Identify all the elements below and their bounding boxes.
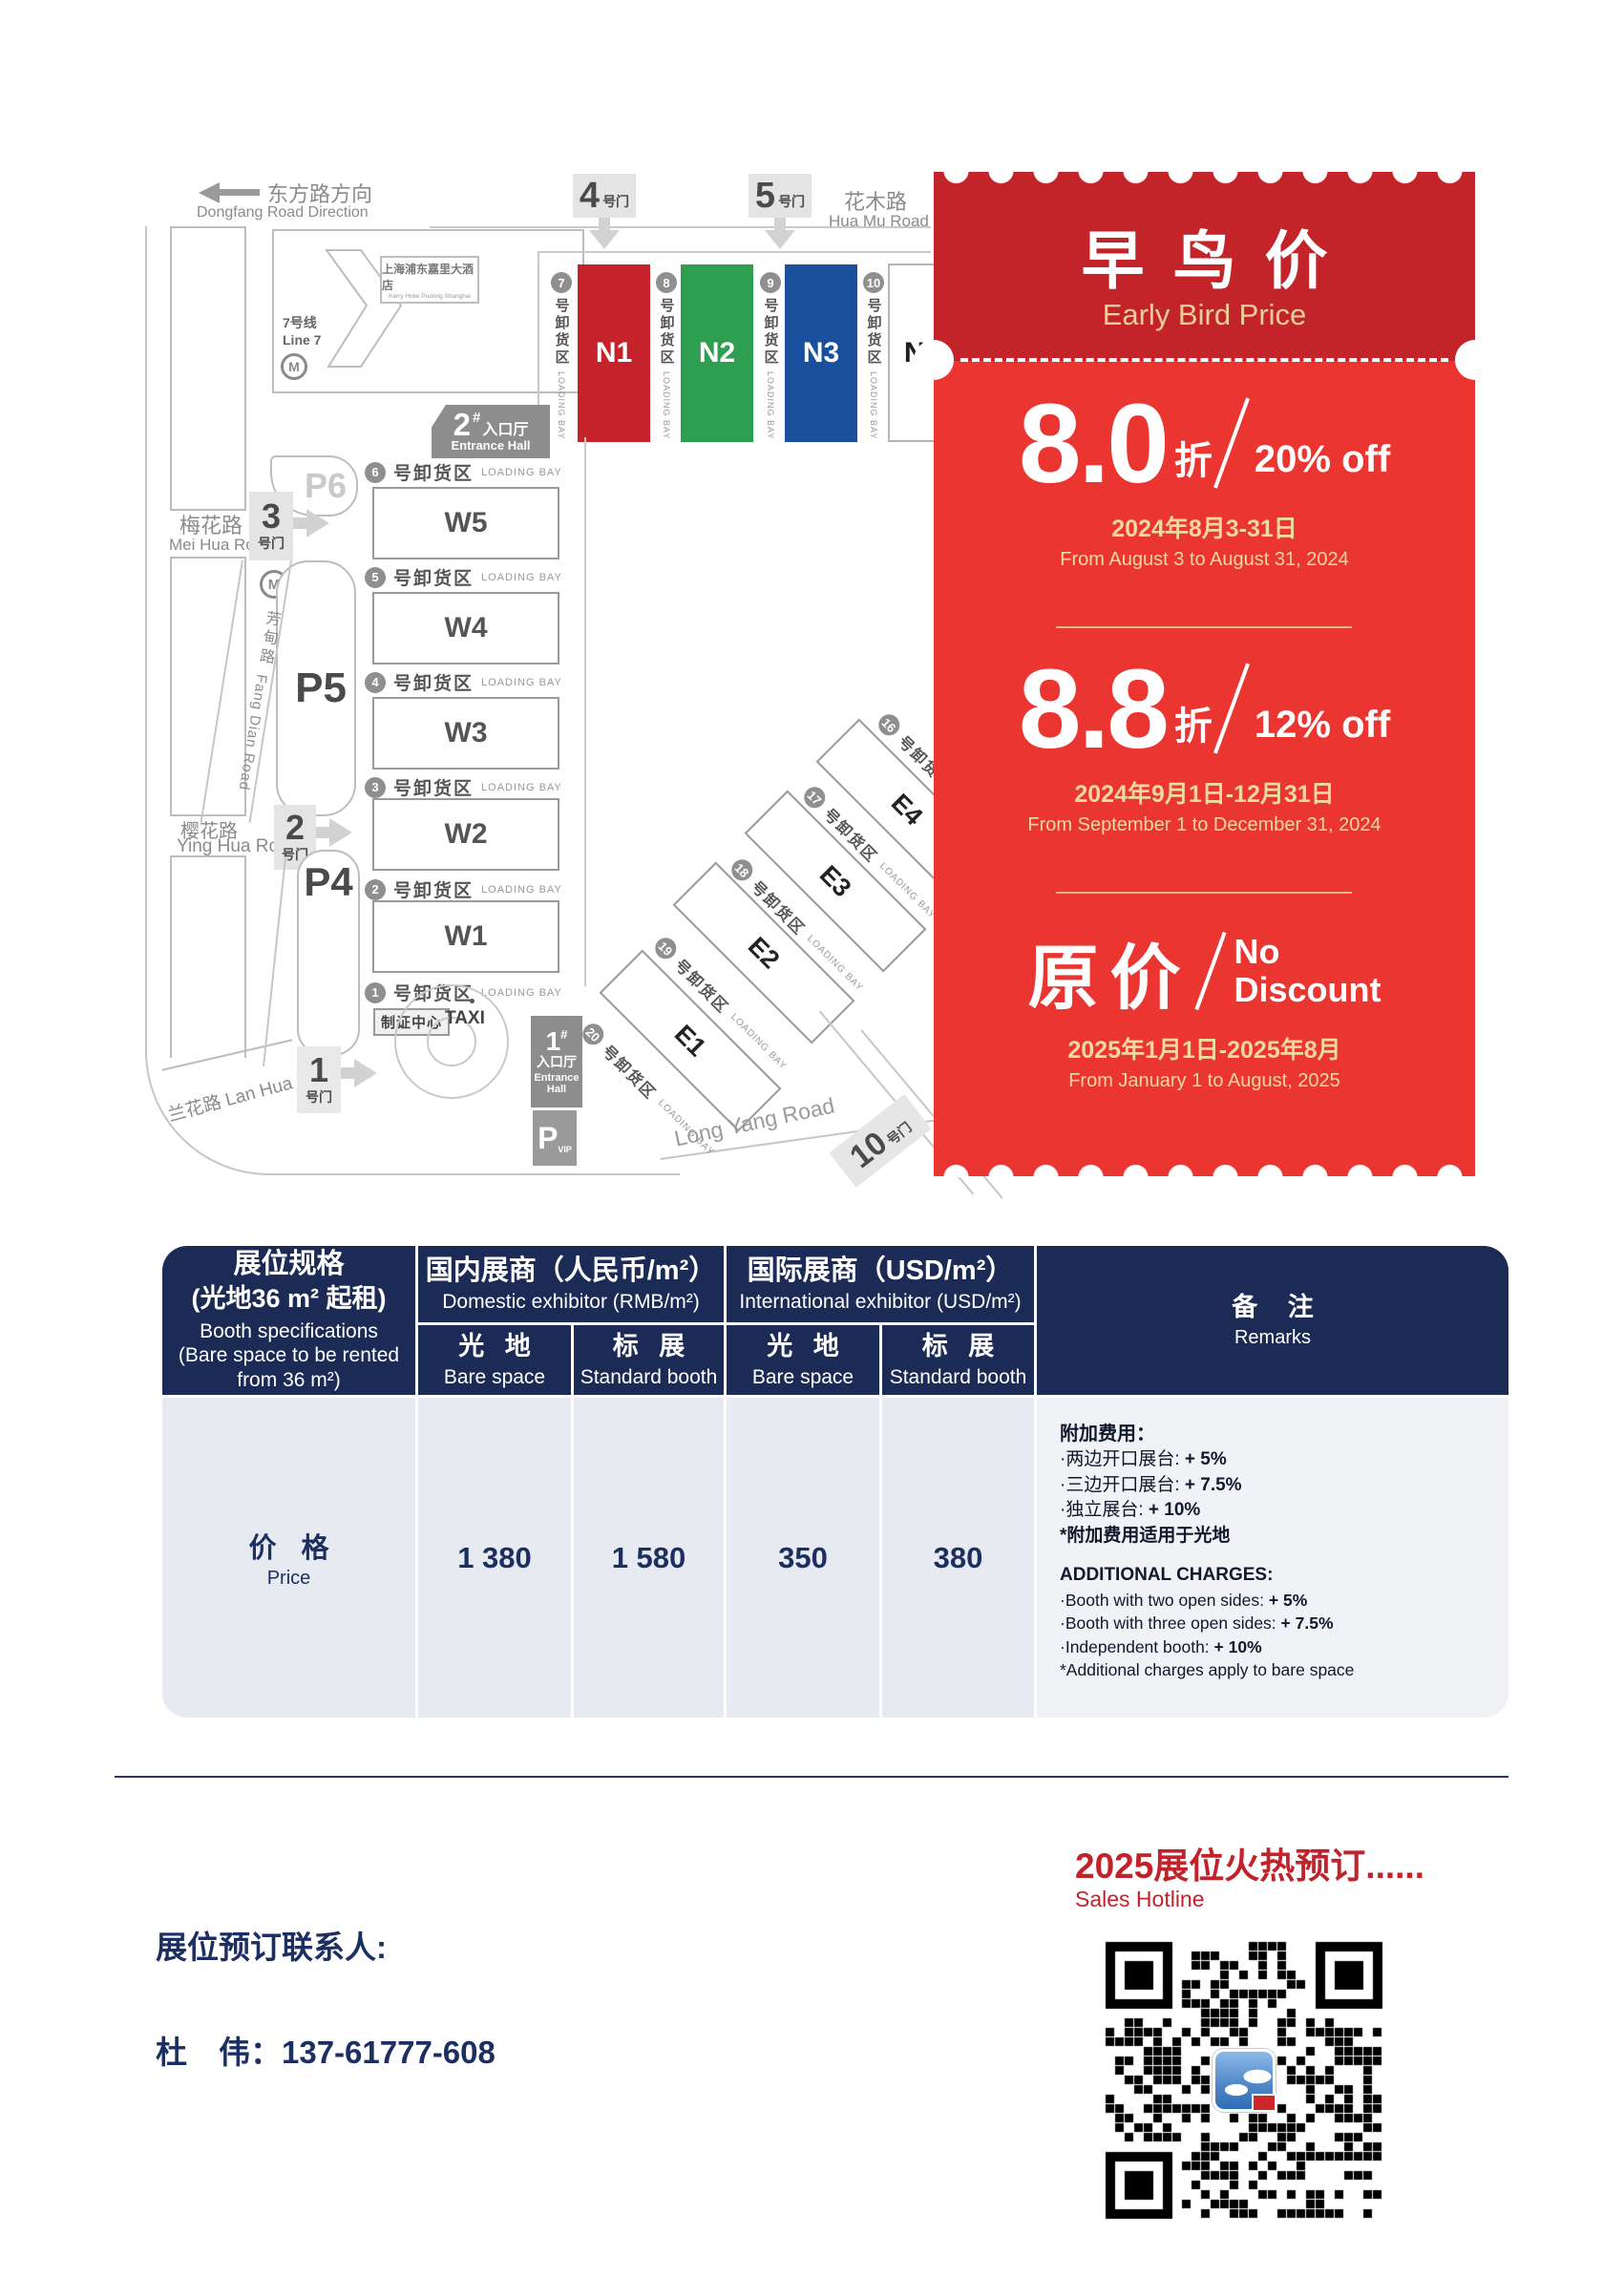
hotel-name-zh: 上海浦东嘉里大酒店 xyxy=(382,261,477,293)
hall-w4: W4 xyxy=(372,592,559,664)
tier-divider xyxy=(1056,626,1352,628)
slash-icon xyxy=(1213,663,1250,753)
subheader-intl-bare: 光 地 Bare space xyxy=(727,1325,879,1395)
ticket-title-zh: 早鸟价 xyxy=(934,210,1475,302)
ticket-body: 8.0 折 20% off 2024年8月3-31日 From August 3… xyxy=(934,361,1475,1176)
tier-3-percent: No Discount xyxy=(1234,933,1381,1010)
loading-bay-8: 8 号卸货区 LOADING BAY xyxy=(656,272,677,439)
loading-bay-6: 6 号卸货区 LOADING BAY xyxy=(365,459,562,485)
remarks-cell: 附加费用： ·两边开口展台: + 5% ·三边开口展台: + 7.5% ·独立展… xyxy=(1037,1398,1508,1718)
qr-center-logo xyxy=(1213,2049,1276,2112)
tier-1-date-en: From August 3 to August 31, 2024 xyxy=(934,549,1475,571)
gate-3-arrow-icon xyxy=(293,517,306,529)
hall-n1: N1 xyxy=(578,264,650,442)
line7-label-top: 7号线 Line 7 xyxy=(283,315,321,348)
flyer-page: 东方路方向 Dongfang Road Direction 上海浦东嘉里大酒店 … xyxy=(0,0,1624,2278)
gate-3: 3 号门 xyxy=(249,492,293,560)
hall-w3: W3 xyxy=(372,697,559,770)
sales-hotline-title: 2025展位火热预订...... xyxy=(1075,1837,1424,1888)
hall-n3: N3 xyxy=(785,264,857,442)
header-international: 国际展商（USD/m²） International exhibitor (US… xyxy=(727,1246,1034,1322)
subheader-domestic-bare: 光 地 Bare space xyxy=(418,1325,571,1395)
huamu-road-label-en: Hua Mu Road xyxy=(829,212,929,231)
tier-3-date-en: From January 1 to August, 2025 xyxy=(934,1070,1475,1092)
subheader-domestic-standard: 标 展 Standard booth xyxy=(574,1325,724,1395)
loading-bay-10: 10 号卸货区 LOADING BAY xyxy=(863,272,884,439)
price-domestic-bare: 1 380 xyxy=(418,1398,571,1718)
tier-2-percent: 12% off xyxy=(1255,704,1390,747)
header-booth-spec: 展位规格 (光地36 m² 起租) Booth specifications (… xyxy=(162,1246,415,1395)
flag-icon xyxy=(1252,2094,1276,2112)
loading-bay-3: 3 号卸货区 LOADING BAY xyxy=(365,774,562,800)
hotel-label-box: 上海浦东嘉里大酒店 Kerry Hotel Pudong Shanghai xyxy=(380,256,479,304)
city-block-c xyxy=(170,855,246,1058)
tier-2: 8.8 折 12% off 2024年9月1日-12月31日 From Sept… xyxy=(934,661,1475,836)
dongfang-road-label-en: Dongfang Road Direction xyxy=(197,204,369,221)
parking-vip: P VIP xyxy=(533,1110,577,1166)
gate-5-arrow-icon xyxy=(774,218,786,230)
gate-1-arrow-icon xyxy=(341,1067,354,1079)
tier-2-date-zh: 2024年9月1日-12月31日 xyxy=(934,775,1475,810)
tier-1-discount: 8.0 xyxy=(1019,398,1167,491)
tier-1-percent: 20% off xyxy=(1255,438,1390,481)
taxi-label: TAXI xyxy=(445,1008,485,1029)
loading-bay-9: 9 号卸货区 LOADING BAY xyxy=(760,272,781,439)
ticket-title-en: Early Bird Price xyxy=(934,298,1475,332)
hall-w5: W5 xyxy=(372,487,559,559)
city-block-a xyxy=(170,226,246,511)
loading-bay-7: 7 号卸货区 LOADING BAY xyxy=(551,272,572,439)
entrance-hall-2-banner: 2 # 入口厅 Entrance Hall xyxy=(432,405,550,458)
gate-10: 10 号门 xyxy=(829,1094,931,1188)
contact-phone: 杜 伟：137-61777-608 xyxy=(156,2027,496,2073)
taxi-dot xyxy=(470,999,475,1003)
tier-3-date-zh: 2025年1月1日-2025年8月 xyxy=(934,1031,1475,1065)
tier-3-label: 原价 xyxy=(1027,945,1192,1012)
tier-2-discount: 8.8 xyxy=(1019,664,1167,756)
ticket-header: 早鸟价 Early Bird Price xyxy=(934,172,1475,361)
ticket-notch-left xyxy=(914,340,954,380)
gate-5: 5号门 xyxy=(749,174,812,218)
slash-icon xyxy=(1195,932,1227,1010)
tier-1-date-zh: 2024年8月3-31日 xyxy=(934,510,1475,544)
parking-p5: P5 xyxy=(276,560,356,816)
hall-w1: W1 xyxy=(372,900,559,973)
slash-icon xyxy=(1213,397,1250,488)
tier-divider xyxy=(1056,892,1352,894)
gate-4-arrow-icon xyxy=(599,218,610,230)
tier-1: 8.0 折 20% off 2024年8月3-31日 From August 3… xyxy=(934,395,1475,571)
w-area-right-line xyxy=(584,437,586,986)
ticket-perforation xyxy=(960,358,1448,362)
header-remarks: 备 注 Remarks xyxy=(1037,1246,1508,1395)
footer-divider xyxy=(115,1776,1508,1778)
tier-2-date-en: From September 1 to December 31, 2024 xyxy=(934,814,1475,836)
price-row-label: 价 格 Price xyxy=(162,1398,415,1718)
parking-p4: P4 xyxy=(297,850,360,1056)
sales-hotline-subtitle: Sales Hotline xyxy=(1075,1887,1205,1912)
road-to-gate1-line-1 xyxy=(263,857,286,1066)
left-road-line xyxy=(145,226,147,1057)
metro-icon: M xyxy=(281,353,307,380)
loading-bay-2: 2 号卸货区 LOADING BAY xyxy=(365,876,562,902)
tier-3: 原价 No Discount 2025年1月1日-2025年8月 From Ja… xyxy=(934,930,1475,1092)
entrance-hall-1-banner: 1 # 入口厅 Entrance Hall xyxy=(531,1016,582,1107)
loading-bay-4: 4 号卸货区 LOADING BAY xyxy=(365,669,562,695)
hotel-name-en: Kerry Hotel Pudong Shanghai xyxy=(389,293,471,300)
hall-w2: W2 xyxy=(372,798,559,871)
ticket-notch-right xyxy=(1455,340,1495,380)
gate-1: 1 号门 xyxy=(297,1046,341,1113)
price-intl-standard: 380 xyxy=(882,1398,1034,1718)
pricing-table: 展位规格 (光地36 m² 起租) Booth specifications (… xyxy=(162,1246,1508,1718)
price-domestic-standard: 1 580 xyxy=(574,1398,724,1718)
hall-n2: N2 xyxy=(681,264,753,442)
loading-bay-5: 5 号卸货区 LOADING BAY xyxy=(365,564,562,590)
gate-2-arrow-icon xyxy=(316,827,329,838)
price-intl-bare: 350 xyxy=(727,1398,879,1718)
wechat-qr-code xyxy=(1098,1934,1390,2226)
gate-4: 4号门 xyxy=(573,174,636,218)
early-bird-ticket: 早鸟价 Early Bird Price 8.0 折 20% off 2024年… xyxy=(934,172,1475,1176)
contact-label: 展位预订联系人: xyxy=(156,1922,387,1968)
dongfang-arrow-icon xyxy=(199,181,258,202)
n-area-top-line xyxy=(538,251,931,253)
header-domestic: 国内展商（人民币/m²） Domestic exhibitor (RMB/m²) xyxy=(418,1246,724,1322)
subheader-intl-standard: 标 展 Standard booth xyxy=(882,1325,1034,1395)
